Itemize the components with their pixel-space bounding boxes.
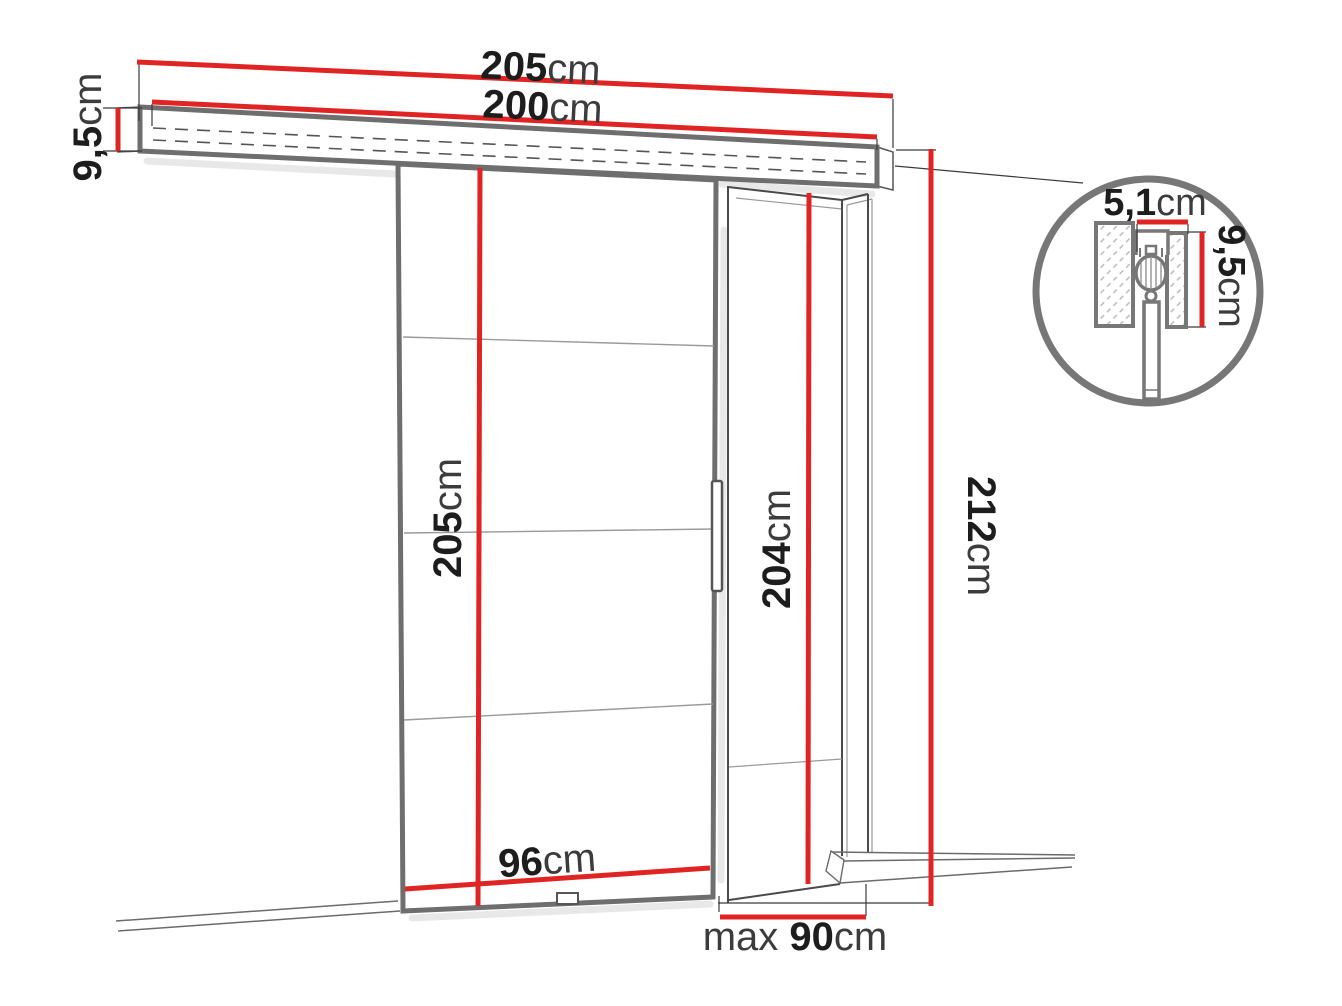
opening-threshold-line	[729, 884, 840, 900]
detail-roller-axle	[1146, 291, 1156, 301]
door-bottom-guide	[557, 893, 578, 904]
detail-roller-bolt	[1146, 246, 1156, 254]
dim-label-opening-width: max 90cm	[703, 915, 888, 959]
dim-label-detail-height: 9,5cm	[1210, 224, 1252, 327]
diagram-canvas: 205cm 200cm 9,5cm 205cm 96cm 204cm 212cm…	[0, 0, 1342, 1006]
floor-lines-left	[116, 901, 400, 931]
dim-label-door-height: 205cm	[426, 458, 470, 578]
dim-label-opening-height: 204cm	[755, 489, 799, 609]
sliding-door-dimension-diagram: 205cm 200cm 9,5cm 205cm 96cm 204cm 212cm…	[0, 0, 1342, 1006]
dim-label-track-height: 9,5cm	[66, 73, 110, 182]
track-detail-circle: 5,1cm 9,5cm	[1036, 179, 1260, 403]
skirting-board	[826, 851, 1075, 883]
detail-door-edge	[1144, 302, 1159, 399]
dim-label-door-width: 96cm	[497, 836, 598, 887]
dim-label-track-inner: 200cm	[482, 82, 604, 132]
dim-line-opening-height	[808, 193, 809, 884]
door-handle	[712, 481, 722, 591]
track-left-endcap	[118, 107, 140, 152]
detail-wall-block-left	[1096, 223, 1133, 326]
opening-back-floor-line	[729, 759, 842, 767]
detail-leader-line	[895, 166, 1083, 183]
dim-label-detail-width: 5,1cm	[1103, 182, 1206, 224]
dim-label-total-height: 212cm	[959, 476, 1003, 596]
door-opening-frame	[728, 186, 872, 903]
dim-line-door-height	[478, 168, 480, 906]
detail-wall-block-right	[1167, 233, 1186, 327]
